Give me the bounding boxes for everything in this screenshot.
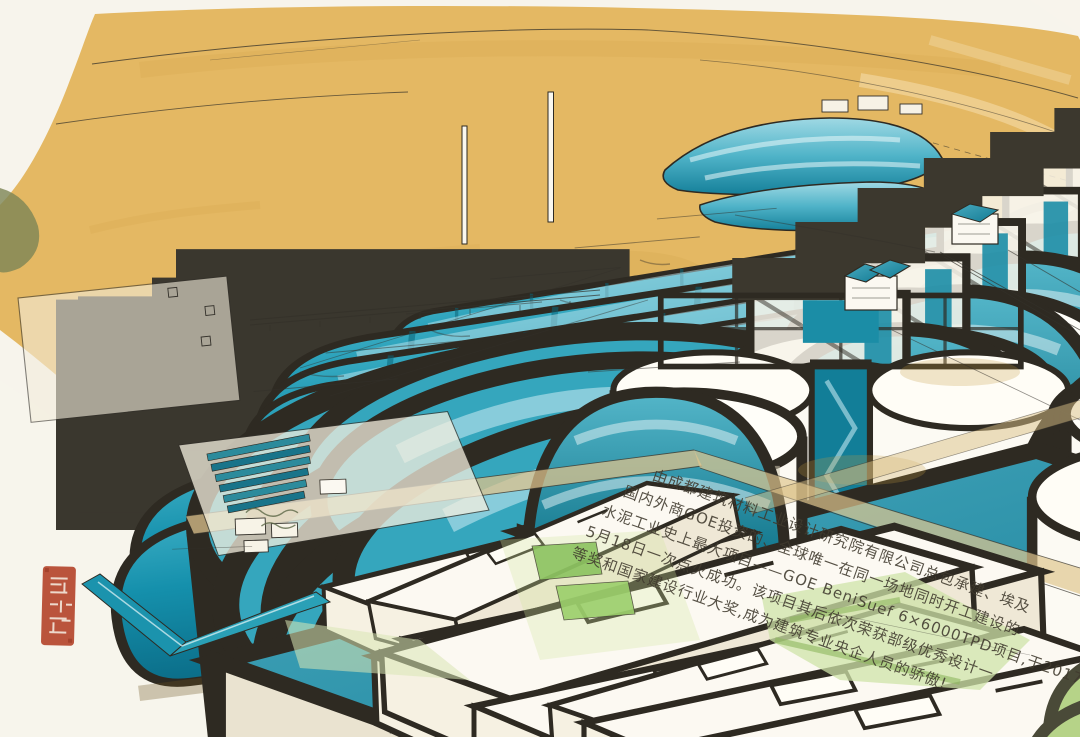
artist-seal-stamp bbox=[41, 566, 76, 646]
watercolor-painting: 由成都建筑材料工业设计研究院有限公司总包承建、埃及 国内外商GOE投资的、全球唯… bbox=[0, 0, 1080, 737]
chimney bbox=[462, 126, 467, 244]
painting-canvas: 由成都建筑材料工业设计研究院有限公司总包承建、埃及 国内外商GOE投资的、全球唯… bbox=[0, 0, 1080, 737]
tank-farm-enclosure bbox=[18, 276, 240, 422]
mid-right-building bbox=[952, 204, 998, 244]
lawn-patch bbox=[556, 581, 635, 620]
chimney bbox=[548, 92, 554, 222]
